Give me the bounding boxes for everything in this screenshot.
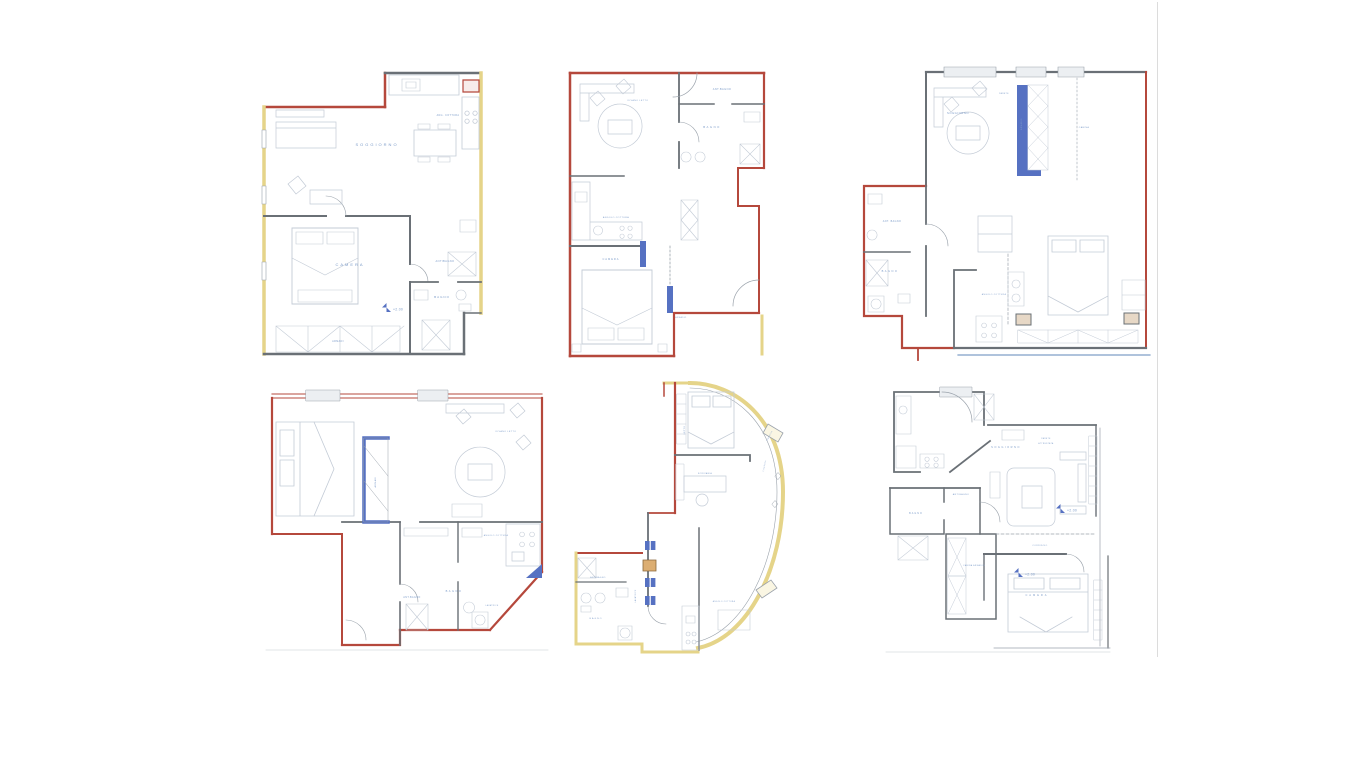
drawing-path [578,558,596,578]
drawing-path [590,79,631,106]
drawing-path [894,392,984,472]
drawing-path [296,232,354,244]
drawing-path [410,264,428,282]
drawing-path [276,122,336,148]
drawing-path [679,122,699,142]
room-label: ANT. BAGNO [883,220,901,223]
drawing-path [1018,330,1138,343]
fill-shape [640,241,646,267]
drawing-path [1094,580,1102,640]
drawing-path [452,504,482,517]
level-marker-icon [1014,568,1023,577]
room-label: CAMERA [1025,593,1048,597]
room-label: FINESTRA [762,459,767,471]
drawing-path [866,260,910,312]
level-marker-icon [382,303,391,312]
drawing-path [448,220,476,276]
room-label: CORRIDOIO [1032,545,1047,547]
drawing-path [890,488,944,534]
drawing-path [867,194,882,240]
drawing-path [674,313,759,356]
drawing-path [738,168,764,313]
room-label: ANTIBAGNO [436,259,455,263]
room-label: BAGNO [446,589,463,593]
drawing-path [306,390,448,401]
fill-shape [645,596,655,605]
drawing-path [864,186,954,348]
level-marker-value: +2.00 [1067,509,1077,513]
room-label: ANT.BAGNO [713,87,732,91]
room-label: ANT.BAGNO [403,596,420,599]
drawing-path [506,524,540,566]
room-label: ANTIBAGNO [953,493,969,496]
room-label: BAGNO [882,269,899,273]
drawing-path [576,553,698,652]
drawing-path [1048,236,1108,315]
drawing-path [978,216,1012,252]
room-label: BAGNO [909,512,923,515]
room-label: SOGGIORNO [991,445,1021,449]
drawing-path [954,270,976,348]
drawing-path [648,606,666,624]
fill-shape [645,578,655,587]
drawing-path [1008,272,1024,306]
drawing-path [926,224,948,246]
drawing-path [414,130,456,156]
drawing-path [298,290,352,302]
drawing-path [688,392,734,448]
room-label: ANTIBAGNO [590,576,605,579]
drawing-path [690,383,783,648]
drawing-path [944,81,987,112]
drawing-path [677,394,686,444]
drawing-path [1124,313,1139,324]
room-label: ANGOLO COTTURA [484,534,509,537]
drawing-path [400,398,542,630]
level-marker-value: +2.00 [1025,573,1035,577]
room-label: CABINA [1079,126,1090,129]
drawing-path [684,476,726,506]
floor-plan-6: SOGGIORNOPARETEATTREZZATAANTIBAGNOBAGNOC… [884,384,1114,656]
room-label: PARETE [999,92,1009,95]
room-label: LETTO [684,426,686,434]
room-label: CAMERA [602,257,619,261]
drawing-path [400,584,418,602]
floor-plan-4: DIVANO LETTOARMADIANGOLO COTTURAANT.BAGN… [266,386,548,654]
drawing-path [681,112,760,162]
drawing-path [980,502,1000,522]
drawing-path [462,528,488,628]
drawing-path [1122,280,1145,310]
drawing-path [676,464,684,500]
room-label: ARMADIO [1020,118,1023,130]
room-label: BAGNO [703,125,721,129]
level-marker: +2.00 [382,303,403,312]
room-label: ANGOLO COTTURA [713,600,736,603]
drawing-path [1066,554,1084,572]
drawing-path [575,192,632,238]
drawing-path [898,536,928,560]
drawing-path [389,75,459,95]
room-label: ANGOLO COTTURA [982,293,1007,296]
floor-plans-canvas: SOGGIORNOANG. COTTURACAMERAANTIBAGNOBAGN… [0,0,1369,768]
drawing-path [1002,430,1024,440]
page-divider-line [1157,2,1158,657]
drawing-path [580,84,634,121]
drawing-path [946,534,996,619]
drawing-path [288,176,342,204]
drawing-path [682,606,699,650]
drawing-path [643,560,656,571]
drawing-path [520,532,535,547]
room-label: CAMERA [335,262,364,267]
drawing-path [934,88,986,127]
level-marker: +2.00 [1056,504,1077,513]
drawing-path [675,455,750,461]
drawing-path [342,630,400,645]
drawing-path [948,538,966,614]
drawing-path [673,73,697,97]
level-marker-icon [1056,504,1065,513]
drawing-path [582,308,652,340]
drawing-path [1028,85,1048,170]
room-label: LAVATRICE [485,604,499,607]
drawing-path [414,290,471,350]
drawing-path [772,473,781,508]
room-label: ARMADI [332,340,344,343]
drawing-path [896,446,916,468]
drawing-path [581,588,632,640]
drawing-path [733,280,759,306]
drawing-path [582,270,652,344]
drawing-path [598,104,642,148]
room-label: ARMADIO [675,316,686,319]
drawing-path [404,528,448,630]
fill-shape [645,541,655,550]
room-label: LAVATRICE [634,589,637,603]
room-label: ANG. COTTURA [437,114,460,117]
drawing-path [402,79,420,91]
drawing-path [740,144,760,164]
room-label: SOGGIORNO [355,142,398,147]
drawing-path [990,472,1000,498]
drawing-path [272,534,342,645]
drawing-path [1007,468,1055,526]
room-label: SCRIVANIA [698,472,712,475]
drawing-path [896,396,911,434]
drawing-path [1008,574,1088,632]
room-label: DIVANO LETTO [496,430,517,433]
drawing-path [465,111,477,123]
drawing-path [326,196,346,216]
room-label: SOGGIORNO [947,111,969,115]
drawing-path [947,112,989,154]
room-label: PARETE [1041,437,1051,440]
room-label: ANGOLO COTTURA [603,216,629,219]
room-label: DIVANO LETTO [628,99,649,102]
drawing-path [572,182,642,240]
drawing-path [276,326,404,352]
drawing-path [572,344,667,352]
drawing-path [681,200,698,240]
fill-shape [667,286,673,313]
room-label: BAGNO [590,617,603,620]
floor-plan-2: ANT.BAGNOBAGNODIVANO LETTOANGOLO COTTURA… [566,64,768,362]
level-marker: +2.00 [1014,568,1035,577]
drawing-path [1016,314,1031,325]
floor-plan-3: SOGGIORNOPARETEARMADIOCABINAANT. BAGNOBA… [858,64,1152,358]
drawing-path [346,620,366,640]
drawing-path [1060,452,1086,514]
drawing-path [446,403,531,450]
room-label: ARMADI [374,477,377,488]
drawing-path [276,422,354,516]
floor-plan-5: LETTOSCRIVANIAANTIBAGNOBAGNOLAVATRICEANG… [572,376,787,654]
drawing-path [463,80,479,92]
room-label: ATTREZZATA [1038,442,1054,445]
floor-plan-1: SOGGIORNOANG. COTTURACAMERAANTIBAGNOBAGN… [262,66,494,358]
fill-shape [1017,170,1041,176]
drawing-path [276,110,324,117]
drawing-path [920,454,944,468]
drawing-path [976,316,1002,342]
drawing-path [455,447,505,497]
room-label: BAGNO [434,295,450,299]
room-label: CABINA ARMADIO [963,564,985,567]
level-marker-value: +2.00 [393,308,403,312]
drawing-path [950,441,990,472]
